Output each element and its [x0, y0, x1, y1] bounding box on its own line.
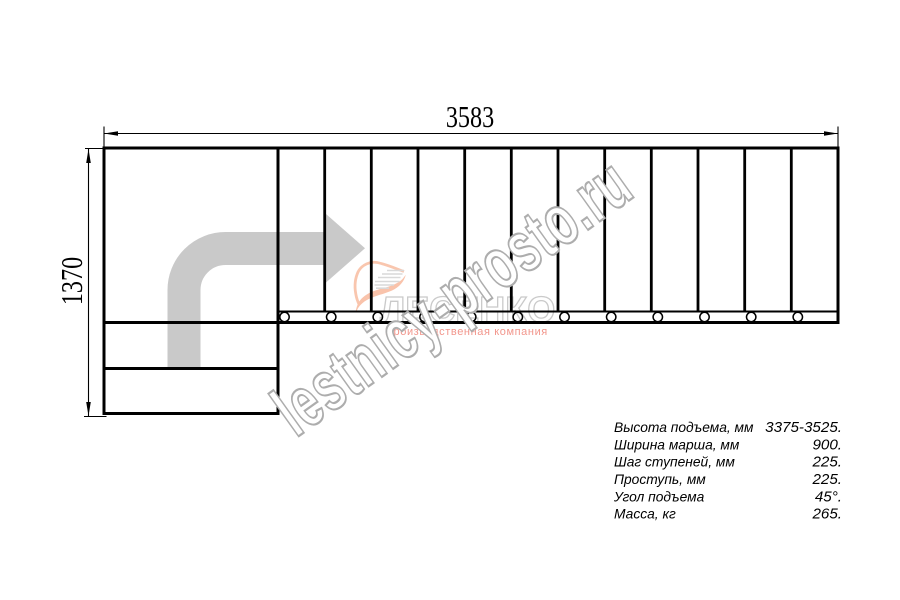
svg-text:Ширина марша, мм: Ширина марша, мм: [614, 437, 740, 452]
svg-text:225.: 225.: [811, 454, 842, 471]
svg-text:1370: 1370: [55, 257, 90, 305]
svg-text:3583: 3583: [446, 100, 494, 135]
svg-text:Масса, кг: Масса, кг: [614, 507, 676, 522]
svg-text:225.: 225.: [811, 471, 842, 488]
svg-text:Проступь, мм: Проступь, мм: [614, 472, 706, 487]
svg-text:900.: 900.: [812, 436, 842, 453]
svg-text:Угол подъема: Угол подъема: [613, 489, 705, 504]
svg-text:lestnicy-prosto.ru: lestnicy-prosto.ru: [258, 142, 646, 451]
svg-text:3375-3525.: 3375-3525.: [765, 419, 842, 436]
svg-text:265.: 265.: [811, 506, 842, 523]
svg-text:45°.: 45°.: [815, 488, 842, 505]
svg-text:Высота подъема, мм: Высота подъема, мм: [614, 420, 754, 435]
svg-text:Шаг ступеней, мм: Шаг ступеней, мм: [614, 455, 735, 470]
